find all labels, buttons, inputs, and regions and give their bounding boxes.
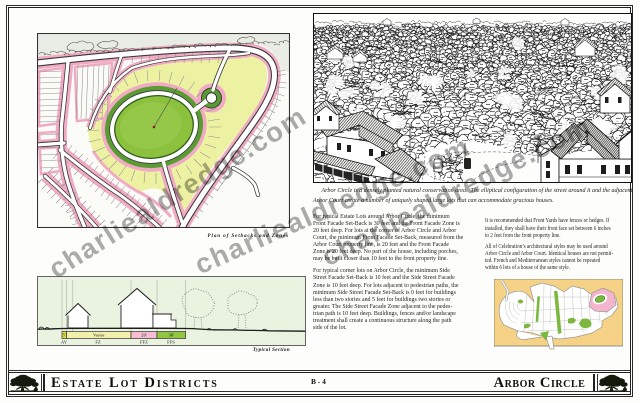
svg-text:FFS: FFS bbox=[167, 340, 175, 345]
svg-text:5': 5' bbox=[63, 333, 66, 338]
svg-text:30': 30' bbox=[169, 333, 175, 338]
svg-text:20': 20' bbox=[141, 333, 147, 338]
svg-text:FFZ: FFZ bbox=[140, 340, 148, 345]
svg-text:AY: AY bbox=[61, 340, 68, 345]
svg-text:Varies: Varies bbox=[93, 333, 105, 338]
svg-text:FZ: FZ bbox=[95, 340, 101, 345]
